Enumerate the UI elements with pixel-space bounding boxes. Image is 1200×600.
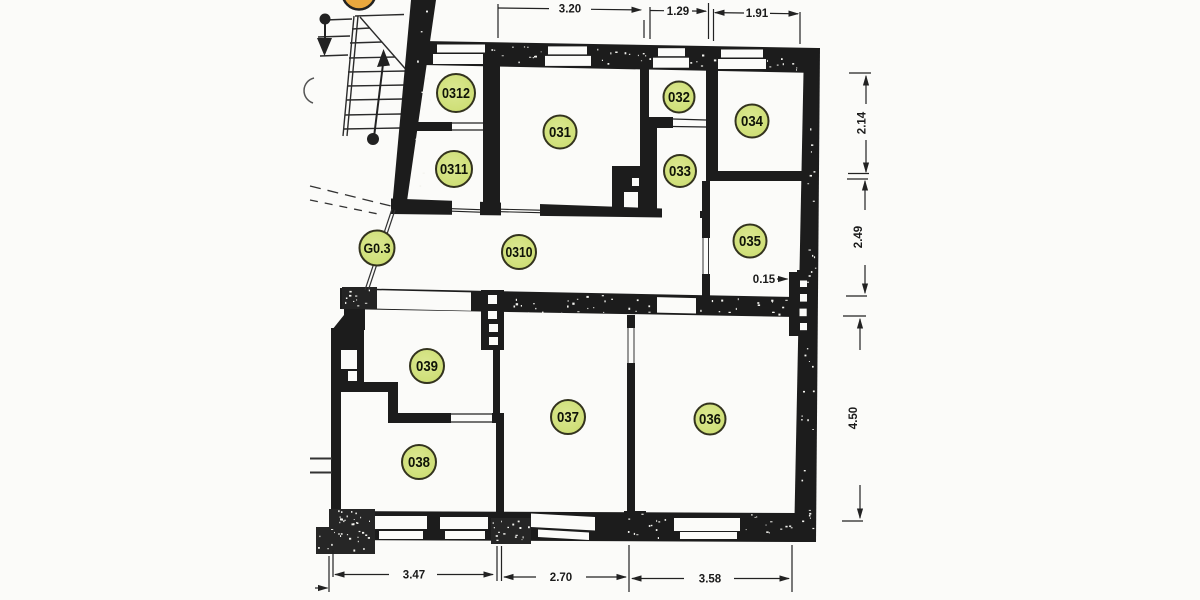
svg-text:035: 035 [739,234,761,250]
svg-text:1.91: 1.91 [746,8,769,20]
svg-text:G0.3: G0.3 [364,241,391,256]
svg-text:0312: 0312 [442,86,470,102]
svg-text:037: 037 [557,410,579,426]
svg-text:036: 036 [699,412,721,428]
svg-text:0310: 0310 [506,245,533,261]
svg-text:3.58: 3.58 [699,574,722,586]
svg-text:2.14: 2.14 [857,111,869,134]
svg-text:2.49: 2.49 [853,226,865,248]
svg-text:1.29: 1.29 [667,6,689,18]
svg-text:038: 038 [408,455,430,471]
svg-text:031: 031 [549,125,571,141]
svg-text:039: 039 [416,359,438,375]
svg-text:033: 033 [669,164,691,180]
svg-text:2.70: 2.70 [550,572,572,584]
svg-text:0.15: 0.15 [753,274,776,286]
svg-text:4.50: 4.50 [848,407,860,429]
svg-text:3.20: 3.20 [559,4,581,16]
svg-text:3.47: 3.47 [403,570,425,582]
svg-text:0311: 0311 [440,162,468,178]
svg-text:034: 034 [741,114,763,130]
svg-text:032: 032 [668,90,690,106]
